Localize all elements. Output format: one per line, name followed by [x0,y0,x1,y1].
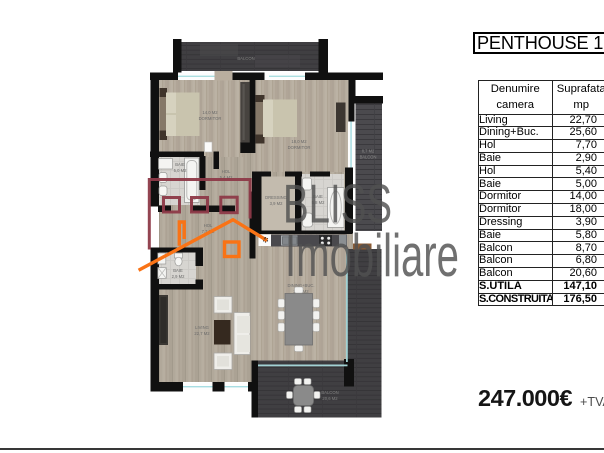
svg-text:DORMITOR: DORMITOR [199,116,222,121]
svg-text:3,9 M2: 3,9 M2 [270,201,283,206]
svg-text:Imobiliare: Imobiliare [285,222,459,289]
svg-text:22,7 M2: 22,7 M2 [194,331,210,336]
svg-text:LIVING: LIVING [195,325,209,330]
svg-text:BALCON: BALCON [237,56,254,61]
svg-text:BALCON: BALCON [321,390,338,395]
svg-text:DORMITOR: DORMITOR [288,145,311,150]
svg-text:5,0 M2: 5,0 M2 [174,168,187,173]
svg-text:BAIE: BAIE [173,268,183,273]
svg-text:14,0 M2: 14,0 M2 [202,110,218,115]
svg-text:HOL: HOL [204,223,213,228]
svg-text:18,0 M2: 18,0 M2 [291,139,307,144]
svg-text:2,9 M2: 2,9 M2 [172,274,185,279]
svg-text:HOL: HOL [222,169,231,174]
svg-text:BALCON: BALCON [360,155,377,160]
svg-text:20,6 M2: 20,6 M2 [322,396,338,401]
svg-text:*: * [264,237,267,244]
svg-text:8,7 M2: 8,7 M2 [362,149,375,154]
svg-text:BAIE: BAIE [175,162,185,167]
